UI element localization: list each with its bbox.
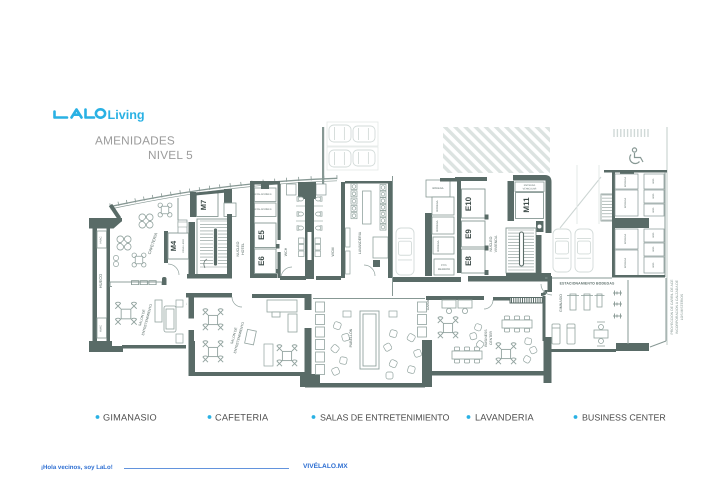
svg-text:BODEGA: BODEGA — [436, 220, 439, 231]
svg-text:VEHICULAR: VEHICULAR — [523, 188, 537, 191]
svg-text:INCORPORACION A CALZADA DE: INCORPORACION A CALZADA DE — [675, 279, 679, 334]
svg-text:BOD: BOD — [652, 193, 655, 198]
svg-text:BOD: BOD — [652, 262, 655, 267]
svg-text:VIVIENDA: VIVIENDA — [494, 235, 498, 252]
svg-text:INSTALACIONES: INSTALACIONES — [253, 193, 272, 196]
svg-text:BODEGA: BODEGA — [624, 197, 627, 208]
svg-text:Living: Living — [108, 108, 145, 122]
svg-text:CAMILLERO: CAMILLERO — [182, 239, 185, 253]
svg-text:WCH: WCH — [284, 247, 288, 256]
svg-text:INSTALACIONES: INSTALACIONES — [253, 208, 272, 211]
svg-text:NUCLEO: NUCLEO — [489, 236, 493, 251]
svg-text:LAVANDERIA: LAVANDERIA — [358, 231, 362, 254]
svg-text:LAVANDERIA: LAVANDERIA — [475, 412, 535, 422]
svg-text:BODEGA: BODEGA — [437, 240, 440, 251]
svg-text:BODEGA: BODEGA — [624, 257, 627, 268]
svg-text:HVAC: HVAC — [100, 236, 103, 243]
svg-text:M4: M4 — [169, 240, 178, 251]
svg-text:E8: E8 — [464, 256, 473, 266]
svg-text:HUECO: HUECO — [98, 274, 103, 288]
svg-text:BODEGA: BODEGA — [624, 176, 627, 187]
svg-text:HOTEL: HOTEL — [241, 243, 245, 255]
svg-text:¡Hola vecinos, soy LaLo!: ¡Hola vecinos, soy LaLo! — [41, 464, 113, 471]
svg-text:BOD: BOD — [652, 207, 655, 212]
svg-text:CENTER: CENTER — [489, 330, 493, 344]
svg-text:LOS MISTERIOS: LOS MISTERIOS — [680, 293, 684, 320]
svg-text:BOD: BOD — [652, 178, 655, 183]
svg-text:BODEGA: BODEGA — [624, 233, 627, 244]
svg-text:M7: M7 — [199, 200, 208, 210]
svg-text:MEDIDOR: MEDIDOR — [438, 268, 450, 271]
svg-text:NUCLEO: NUCLEO — [236, 241, 240, 256]
svg-text:AMENIDADES: AMENIDADES — [95, 134, 175, 148]
svg-text:E5: E5 — [257, 230, 266, 240]
svg-text:SALAS DE ENTRETENIMIENTO: SALAS DE ENTRETENIMIENTO — [320, 412, 449, 422]
svg-text:E9: E9 — [464, 229, 473, 239]
svg-text:E10: E10 — [464, 196, 473, 211]
svg-text:BUSINESS: BUSINESS — [484, 329, 488, 347]
svg-text:BODEGA: BODEGA — [432, 187, 443, 190]
svg-text:M11: M11 — [522, 197, 531, 213]
svg-text:VIVÉLALO.MX: VIVÉLALO.MX — [303, 462, 348, 470]
svg-text:BODEGA: BODEGA — [436, 200, 439, 211]
svg-text:BOD: BOD — [652, 232, 655, 237]
svg-text:PABELLÓN: PABELLÓN — [348, 328, 353, 347]
svg-text:WCM: WCM — [331, 248, 335, 257]
svg-text:PROYECCION DE CARRIL DE ACE: PROYECCION DE CARRIL DE ACE — [670, 279, 674, 335]
svg-text:HVAC: HVAC — [100, 325, 103, 332]
svg-text:CTO.: CTO. — [441, 264, 447, 267]
svg-text:ESTACIONAMIENTO BODEGAS: ESTACIONAMIENTO BODEGAS — [560, 282, 615, 286]
svg-text:BUSINESS CENTER: BUSINESS CENTER — [582, 412, 666, 422]
svg-text:BOD: BOD — [652, 246, 655, 251]
svg-text:GIMANASIO: GIMANASIO — [103, 412, 157, 422]
svg-text:CAFETERIA: CAFETERIA — [215, 412, 269, 422]
svg-text:GIMNASIO: GIMNASIO — [559, 294, 563, 312]
svg-text:E6: E6 — [257, 256, 266, 266]
svg-text:NIVEL 5: NIVEL 5 — [148, 148, 193, 162]
